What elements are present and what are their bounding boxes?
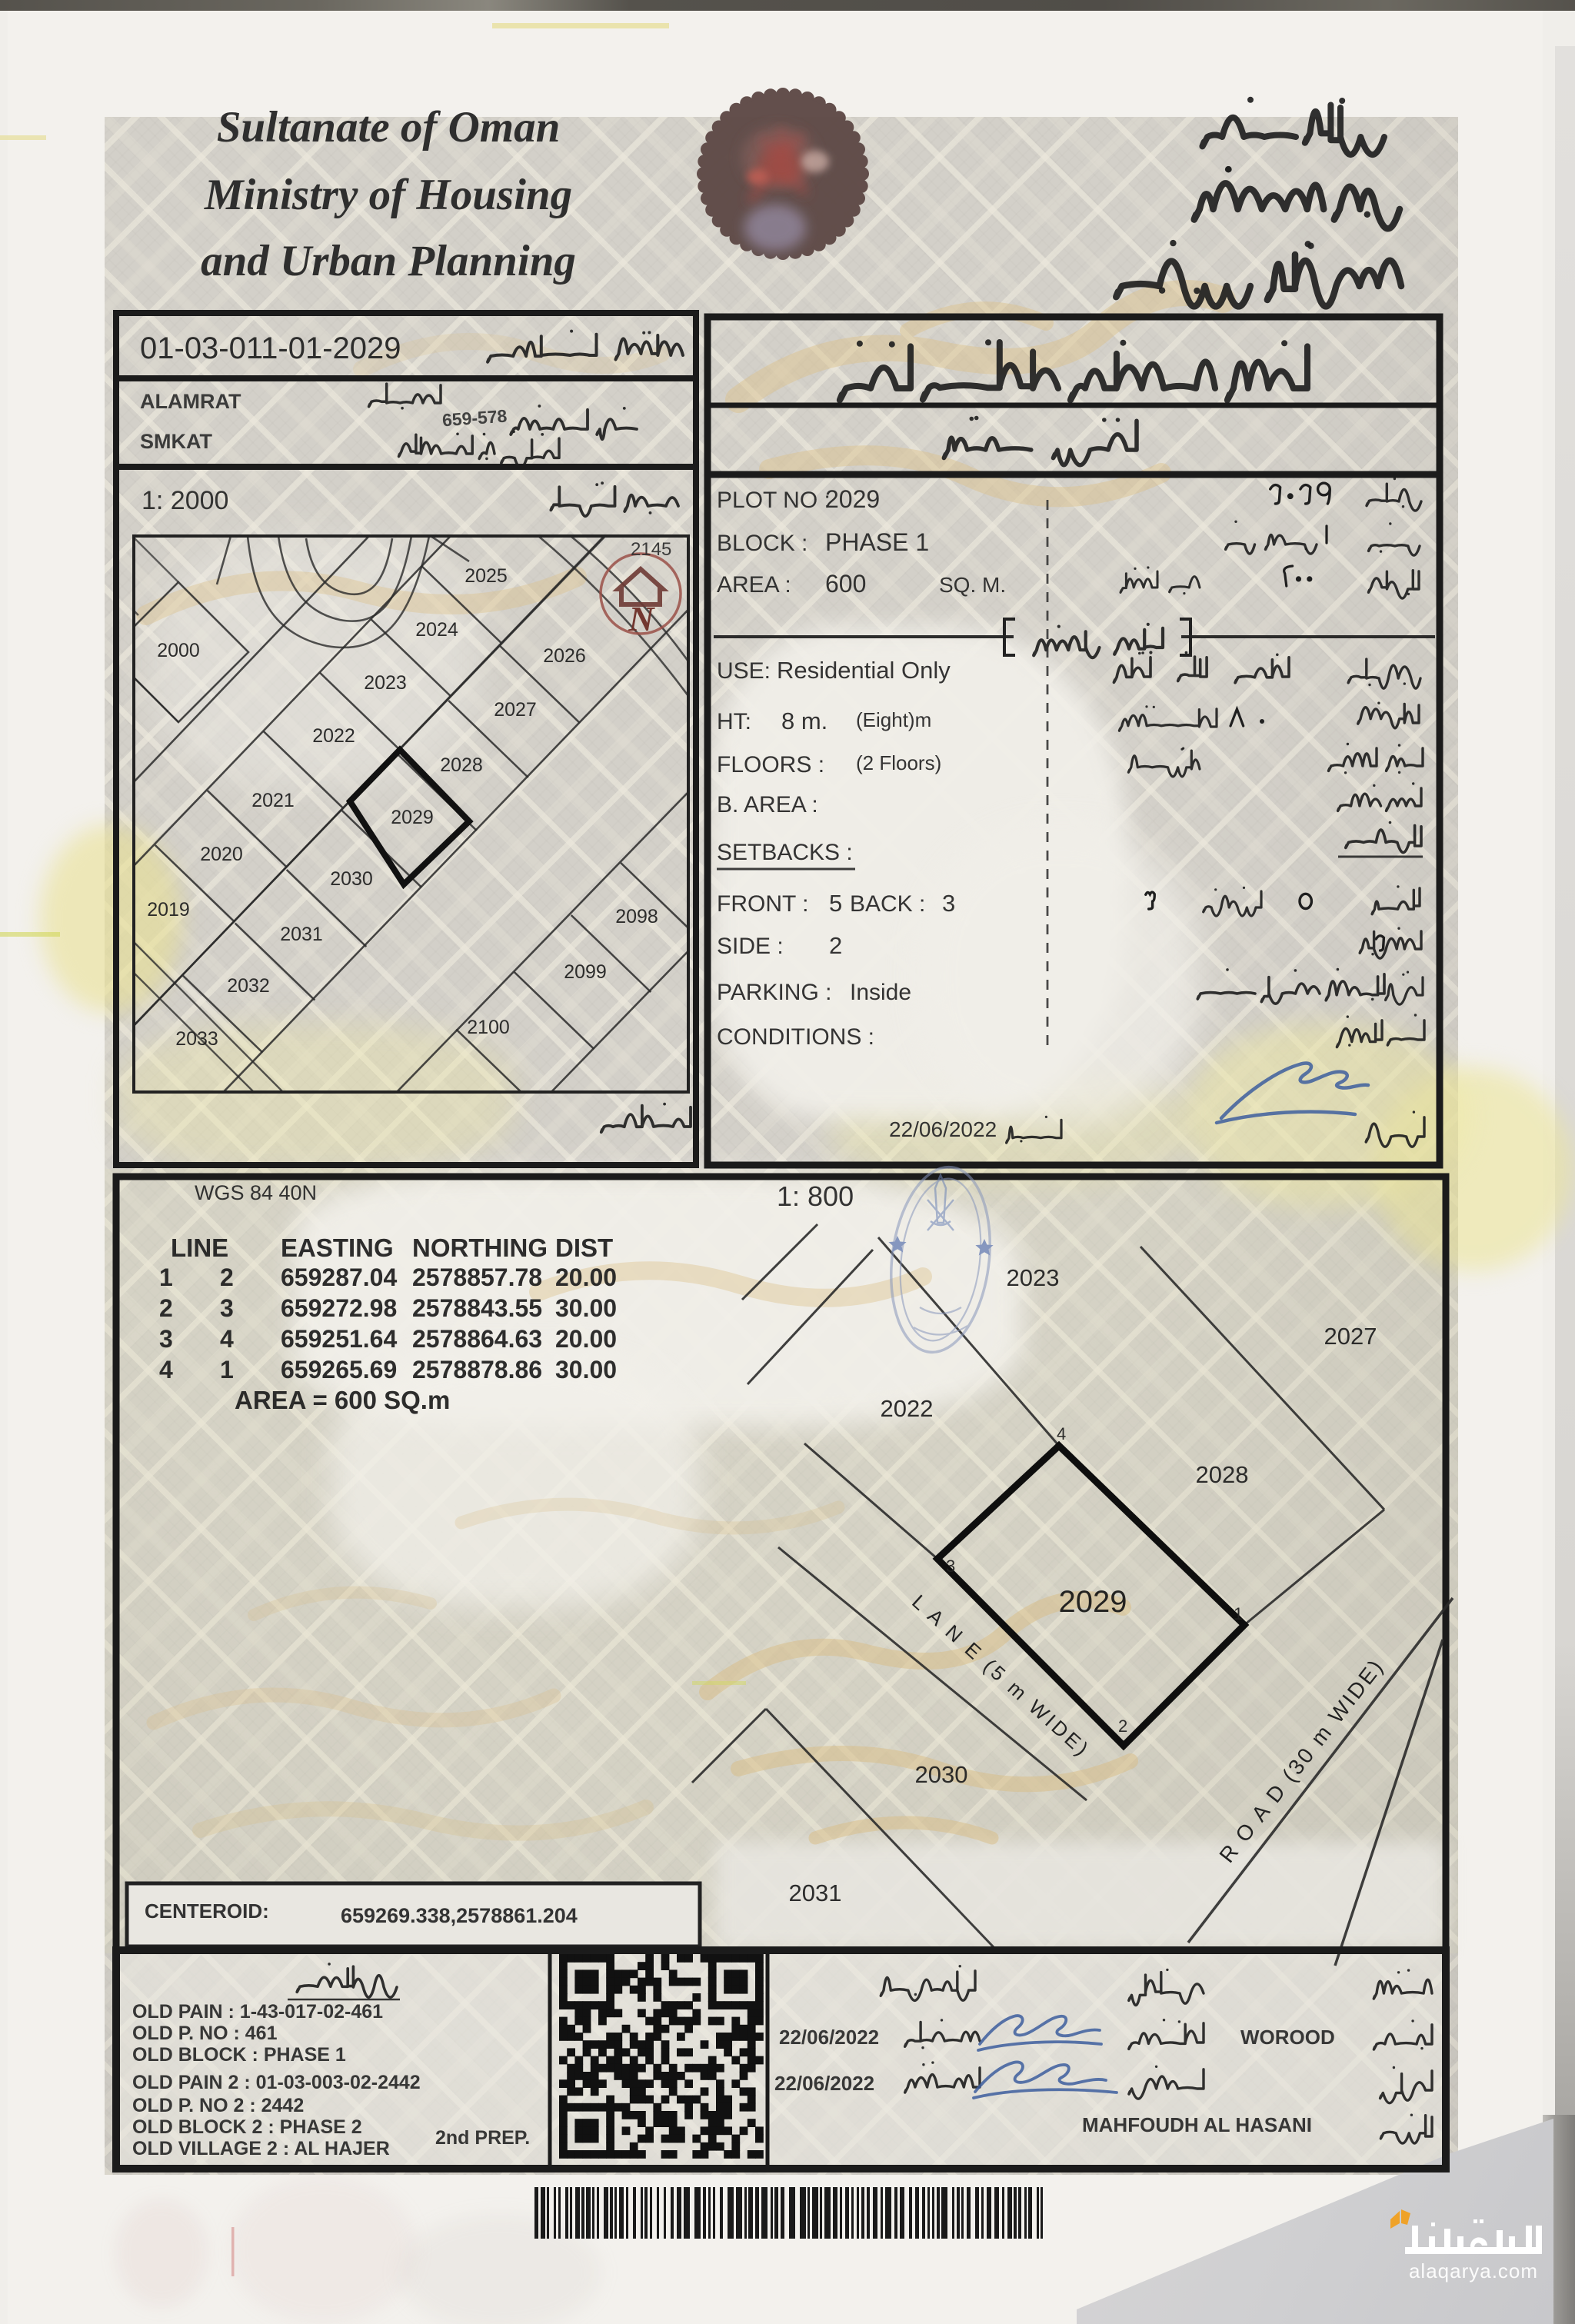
svg-text:20.00: 20.00 [555, 1325, 617, 1353]
svg-text:Sultanate of Oman: Sultanate of Oman [217, 103, 561, 151]
svg-text:2100: 2100 [467, 1017, 510, 1038]
svg-text:2578878.86: 2578878.86 [412, 1356, 542, 1383]
svg-text:2027: 2027 [494, 699, 537, 721]
svg-text:2: 2 [159, 1294, 173, 1322]
svg-text:AREA :: AREA : [717, 572, 791, 598]
svg-text:and Urban Planning: and Urban Planning [201, 237, 576, 285]
svg-text:2027: 2027 [1324, 1323, 1377, 1350]
svg-text:22/06/2022: 22/06/2022 [779, 2026, 879, 2049]
svg-text:2025: 2025 [465, 565, 508, 587]
svg-text:2022: 2022 [312, 725, 355, 747]
svg-text:DIST: DIST [555, 1234, 613, 1262]
svg-text:4: 4 [159, 1356, 173, 1383]
svg-text:2029: 2029 [1059, 1585, 1127, 1619]
svg-text:2020: 2020 [200, 844, 243, 865]
svg-text:2024: 2024 [415, 619, 458, 641]
svg-text:WGS 84 40N: WGS 84 40N [195, 1181, 317, 1204]
svg-text:BLOCK :: BLOCK : [717, 531, 807, 556]
svg-text:2023: 2023 [364, 672, 407, 694]
svg-text:4: 4 [220, 1325, 234, 1353]
svg-text:2029: 2029 [391, 807, 434, 828]
svg-text:01-03-011-01-2029: 01-03-011-01-2029 [140, 331, 401, 365]
svg-text:2030: 2030 [915, 1761, 968, 1788]
svg-text:2578843.55: 2578843.55 [412, 1294, 542, 1322]
svg-text:2nd PREP.: 2nd PREP. [435, 2127, 530, 2149]
svg-text:EASTING: EASTING [281, 1234, 394, 1262]
svg-text:659251.64: 659251.64 [281, 1325, 397, 1353]
svg-text:2099: 2099 [564, 961, 607, 983]
svg-text:2030: 2030 [330, 868, 373, 890]
svg-text:PLOT NO :: PLOT NO : [717, 488, 831, 513]
svg-text:B. AREA :: B. AREA : [717, 792, 818, 817]
svg-text:2019: 2019 [147, 899, 190, 921]
svg-text:OLD BLOCK : PHASE 1: OLD BLOCK : PHASE 1 [132, 2044, 346, 2066]
svg-text:R O A D (30 m WIDE): R O A D (30 m WIDE) [1214, 1653, 1388, 1866]
svg-text:22/06/2022: 22/06/2022 [774, 2072, 874, 2095]
svg-text:PARKING :: PARKING : [717, 980, 831, 1005]
svg-text:3: 3 [220, 1294, 234, 1322]
svg-text:20.00: 20.00 [555, 1264, 617, 1291]
svg-text:8 m.: 8 m. [781, 708, 827, 734]
svg-text:Ministry of Housing: Ministry of Housing [204, 171, 572, 219]
svg-text:(2 Floors): (2 Floors) [856, 751, 941, 774]
svg-text:AREA = 600 SQ.m: AREA = 600 SQ.m [235, 1386, 450, 1414]
svg-text:2028: 2028 [1196, 1461, 1249, 1488]
svg-text:2: 2 [1118, 1716, 1127, 1736]
svg-text:30.00: 30.00 [555, 1294, 617, 1322]
svg-text:USE:: USE: [717, 658, 771, 684]
svg-text:SIDE :: SIDE : [717, 934, 784, 959]
svg-text:2031: 2031 [280, 924, 323, 945]
svg-text:LINE: LINE [171, 1234, 228, 1262]
svg-text:1: 1 [159, 1264, 173, 1291]
svg-text:alaqarya.com: alaqarya.com [1409, 2259, 1538, 2282]
svg-text:CONDITIONS :: CONDITIONS : [717, 1024, 874, 1050]
svg-text:3: 3 [946, 1557, 955, 1576]
svg-text:OLD PAIN 2 : 01-03-003-02-2442: OLD PAIN 2 : 01-03-003-02-2442 [132, 2072, 421, 2093]
svg-text:WOROOD: WOROOD [1240, 2026, 1335, 2049]
svg-text:OLD P. NO 2 : 2442: OLD P. NO 2 : 2442 [132, 2095, 304, 2116]
svg-text:1: 1 [220, 1356, 234, 1383]
svg-text:2031: 2031 [789, 1880, 842, 1906]
svg-text:SMKAT: SMKAT [140, 430, 212, 453]
svg-text:2033: 2033 [175, 1028, 218, 1050]
svg-text:Inside: Inside [850, 980, 911, 1005]
svg-text:NORTHING: NORTHING [412, 1234, 548, 1262]
svg-text:659287.04: 659287.04 [281, 1264, 397, 1291]
svg-text:ALAMRAT: ALAMRAT [140, 390, 241, 413]
svg-text:2029: 2029 [825, 485, 880, 513]
svg-text:2032: 2032 [227, 975, 270, 997]
svg-text:3: 3 [942, 890, 955, 917]
svg-text:659-578: 659-578 [441, 406, 508, 431]
svg-text:N: N [628, 599, 655, 638]
svg-text:659265.69: 659265.69 [281, 1356, 397, 1383]
svg-text:2098: 2098 [615, 906, 658, 927]
svg-text:2: 2 [829, 932, 842, 959]
svg-text:22/06/2022: 22/06/2022 [889, 1117, 997, 1141]
svg-text:5: 5 [829, 890, 842, 917]
svg-text:1: 1 [1234, 1604, 1243, 1623]
svg-text:Residential Only: Residential Only [777, 657, 951, 684]
svg-text:OLD BLOCK 2 : PHASE 2: OLD BLOCK 2 : PHASE 2 [132, 2116, 362, 2138]
svg-text:30.00: 30.00 [555, 1356, 617, 1383]
svg-text:OLD P. NO : 461: OLD P. NO : 461 [132, 2023, 278, 2044]
svg-text:BACK :: BACK : [850, 891, 925, 917]
svg-text:2023: 2023 [1007, 1264, 1060, 1291]
svg-text:659272.98: 659272.98 [281, 1294, 397, 1322]
svg-text:FRONT :: FRONT : [717, 891, 808, 917]
svg-text:2028: 2028 [440, 754, 483, 776]
svg-text:2578857.78: 2578857.78 [412, 1264, 542, 1291]
svg-text:2000: 2000 [157, 640, 200, 661]
svg-text:2021: 2021 [251, 790, 295, 811]
svg-text:OLD PAIN : 1-43-017-02-461: OLD PAIN : 1-43-017-02-461 [132, 2001, 383, 2023]
svg-text:2026: 2026 [543, 645, 586, 667]
svg-text:2145: 2145 [631, 539, 671, 560]
svg-text:1: 800: 1: 800 [777, 1180, 854, 1212]
svg-text:PHASE 1: PHASE 1 [825, 528, 929, 556]
svg-text:1: 2000: 1: 2000 [142, 486, 228, 515]
svg-text:SQ. M.: SQ. M. [939, 573, 1006, 597]
svg-text:2: 2 [220, 1264, 234, 1291]
svg-text:3: 3 [159, 1325, 173, 1353]
svg-text:659269.338,2578861.204: 659269.338,2578861.204 [341, 1904, 578, 1927]
svg-text:MAHFOUDH AL HASANI: MAHFOUDH AL HASANI [1082, 2113, 1312, 2136]
svg-text:2022: 2022 [881, 1395, 934, 1422]
svg-text:2578864.63: 2578864.63 [412, 1325, 542, 1353]
svg-text:OLD VILLAGE 2 : AL HAJER: OLD VILLAGE 2 : AL HAJER [132, 2138, 390, 2159]
svg-text:CENTEROID:: CENTEROID: [145, 1899, 269, 1923]
svg-text:600: 600 [825, 570, 866, 598]
svg-text:FLOORS :: FLOORS : [717, 752, 824, 777]
svg-text:SETBACKS :: SETBACKS : [717, 840, 853, 865]
svg-text:HT:: HT: [717, 709, 751, 734]
svg-text:4: 4 [1057, 1424, 1066, 1443]
svg-text:(Eight)m: (Eight)m [856, 708, 931, 731]
